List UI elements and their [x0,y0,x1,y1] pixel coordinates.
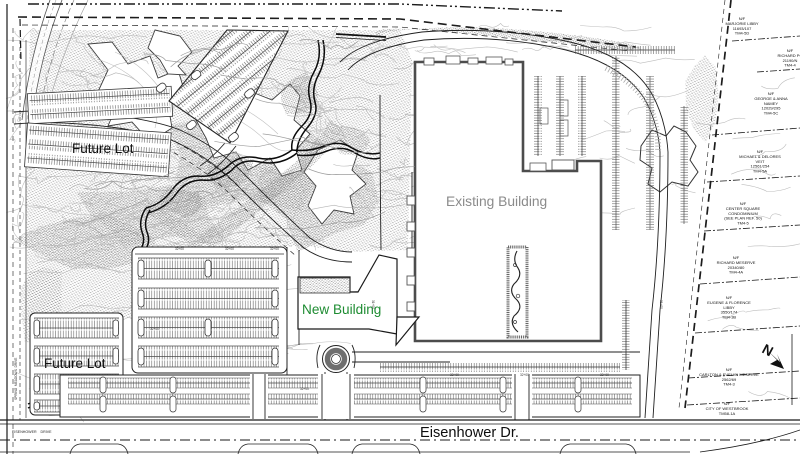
svg-text:31+00: 31+00 [659,300,663,309]
svg-text:EISENHOWER DRIVE: EISENHOWER DRIVE [12,430,52,434]
svg-text:SPRING MEADOWS DRIVE: SPRING MEADOWS DRIVE [14,358,18,400]
svg-text:32+00: 32+00 [520,373,529,377]
svg-text:Future Lot: Future Lot [72,141,134,156]
svg-text:32+00: 32+00 [300,387,309,391]
svg-text:32+00: 32+00 [225,247,234,251]
svg-text:New Building: New Building [302,302,381,317]
svg-text:32+00: 32+00 [270,247,279,251]
svg-text:32+00: 32+00 [600,373,609,377]
svg-text:Existing Building: Existing Building [446,194,547,209]
svg-text:Eisenhower Dr.: Eisenhower Dr. [420,425,519,441]
svg-text:Future Lot: Future Lot [44,356,106,371]
svg-text:32+00: 32+00 [450,373,459,377]
svg-text:32+00: 32+00 [175,247,184,251]
svg-text:32+00: 32+00 [150,327,159,331]
svg-text:31+00: 31+00 [371,300,375,309]
